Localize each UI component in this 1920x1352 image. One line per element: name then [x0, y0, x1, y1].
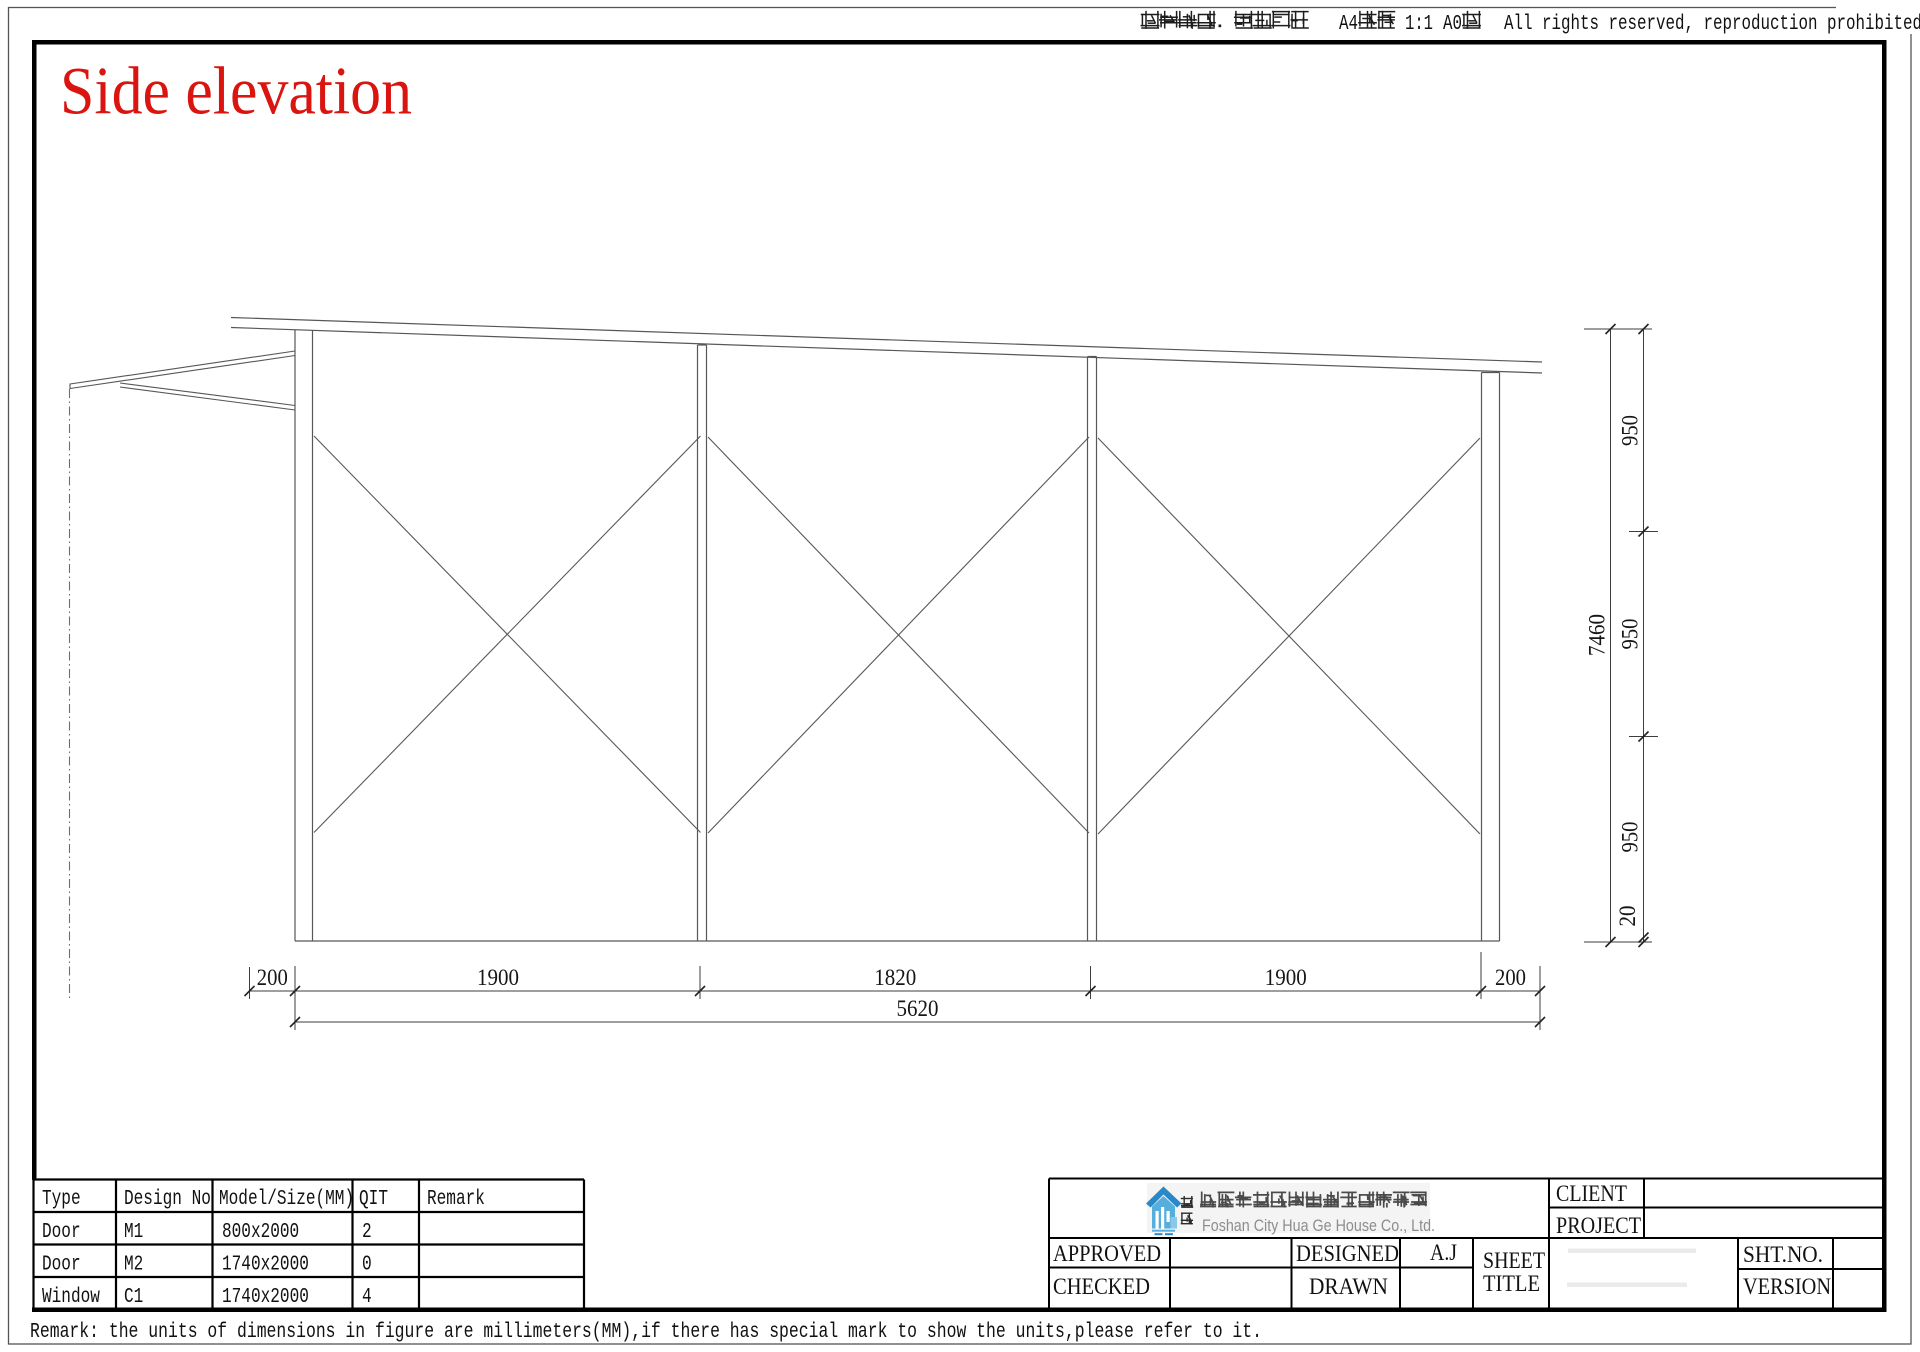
svg-text:M1: M1 [124, 1220, 143, 1244]
svg-text:800x2000: 800x2000 [222, 1220, 299, 1244]
svg-text:Door: Door [42, 1253, 81, 1277]
svg-text:Design No: Design No [124, 1187, 211, 1211]
svg-text:1740x2000: 1740x2000 [222, 1253, 309, 1277]
svg-text:QIT: QIT [359, 1187, 388, 1211]
svg-text:Model/Size(MM): Model/Size(MM) [219, 1187, 354, 1211]
svg-text:20: 20 [1615, 906, 1641, 927]
svg-text:950: 950 [1618, 415, 1644, 446]
svg-text:M2: M2 [124, 1253, 143, 1277]
svg-text:VERSION: VERSION [1743, 1274, 1831, 1299]
svg-text:2: 2 [362, 1220, 372, 1244]
svg-text:All rights reserved, reproduct: All rights reserved, reproduction prohib… [1504, 13, 1920, 36]
svg-text:PROJECT: PROJECT [1556, 1213, 1641, 1238]
svg-text:SHEET: SHEET [1483, 1248, 1545, 1273]
svg-text:Foshan City Hua Ge House Co.,: Foshan City Hua Ge House Co., Ltd. [1202, 1217, 1435, 1235]
svg-text:4: 4 [362, 1285, 372, 1309]
svg-text:Type: Type [42, 1187, 81, 1211]
svg-text:TITLE: TITLE [1483, 1271, 1540, 1296]
svg-text:1900: 1900 [477, 965, 519, 991]
svg-text:200: 200 [257, 965, 288, 991]
svg-text:1:1: 1:1 [1405, 13, 1433, 36]
svg-text:Door: Door [42, 1220, 81, 1244]
svg-text:950: 950 [1618, 619, 1644, 650]
svg-text:Side elevation: Side elevation [60, 53, 412, 129]
svg-text:Remark: Remark [427, 1187, 485, 1211]
svg-text:Remark: the units of dimension: Remark: the units of dimensions in figur… [30, 1320, 1262, 1344]
svg-text:950: 950 [1618, 822, 1644, 853]
svg-text:CLIENT: CLIENT [1556, 1181, 1627, 1206]
svg-text:DRAWN: DRAWN [1309, 1274, 1388, 1299]
svg-text:1740x2000: 1740x2000 [222, 1285, 309, 1309]
svg-text:A4: A4 [1339, 13, 1358, 36]
svg-text:APPROVED: APPROVED [1053, 1241, 1161, 1266]
svg-text:DESIGNED: DESIGNED [1296, 1241, 1399, 1266]
svg-text:7460: 7460 [1585, 614, 1611, 656]
svg-text:SHT.NO.: SHT.NO. [1743, 1242, 1823, 1267]
svg-text:A0: A0 [1443, 13, 1462, 36]
svg-text:1900: 1900 [1265, 965, 1307, 991]
svg-text:1820: 1820 [874, 965, 916, 991]
svg-text:A.J: A.J [1430, 1240, 1457, 1265]
svg-text:0: 0 [362, 1253, 372, 1277]
svg-text:Window: Window [42, 1285, 100, 1309]
svg-text:200: 200 [1495, 965, 1526, 991]
svg-text:CHECKED: CHECKED [1053, 1274, 1150, 1299]
svg-text:5620: 5620 [897, 996, 939, 1022]
svg-text:C1: C1 [124, 1285, 143, 1309]
